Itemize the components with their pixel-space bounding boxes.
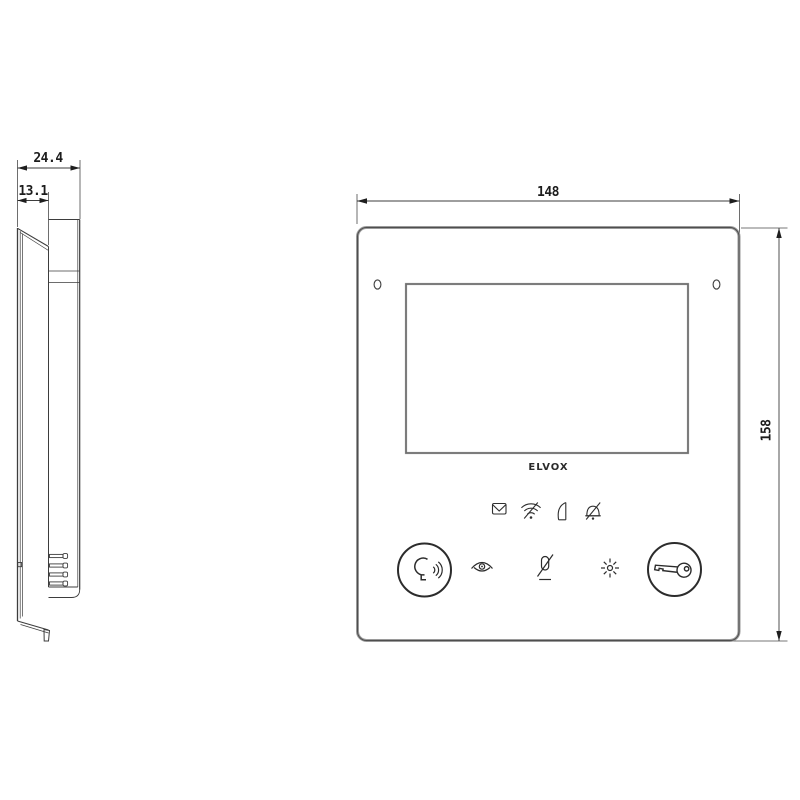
camera-eye-icon bbox=[472, 563, 493, 572]
dim-label-total-depth: 24.4 bbox=[24, 151, 72, 166]
side-front-panel bbox=[18, 228, 50, 641]
mic-muted-icon bbox=[538, 555, 554, 580]
terminal-pins bbox=[50, 554, 68, 586]
terminal-pin bbox=[50, 581, 68, 586]
monitor-outline bbox=[358, 228, 740, 641]
message-icon bbox=[493, 504, 507, 515]
status-icon-row bbox=[493, 503, 601, 520]
stair-light-icon bbox=[601, 559, 619, 578]
dim-label-height: 158 bbox=[760, 407, 775, 455]
side-extension-lines bbox=[18, 160, 81, 245]
wifi-icon bbox=[521, 503, 540, 519]
touch-control-row bbox=[398, 543, 701, 597]
terminal-pin bbox=[50, 572, 68, 577]
side-view bbox=[18, 160, 81, 641]
open-door-icon bbox=[558, 503, 566, 520]
slot-left bbox=[374, 280, 381, 289]
screen bbox=[406, 284, 688, 453]
dimension-total-depth bbox=[18, 165, 81, 170]
terminal-pin bbox=[50, 554, 68, 559]
slot-right bbox=[713, 280, 720, 289]
dim-label-width: 148 bbox=[524, 185, 572, 200]
front-extension-lines bbox=[357, 194, 788, 641]
terminal-pin bbox=[50, 563, 68, 568]
key-icon bbox=[654, 558, 692, 578]
side-rear-box bbox=[49, 220, 80, 598]
talk-answer-button bbox=[398, 544, 451, 597]
dim-label-front-depth: 13.1 bbox=[9, 184, 57, 199]
talk-icon bbox=[415, 558, 442, 580]
door-lock-key-button bbox=[648, 543, 701, 596]
bell-muted-icon bbox=[585, 503, 601, 520]
dimension-height bbox=[776, 228, 781, 641]
brand-logo: ELVOX bbox=[522, 462, 575, 473]
technical-drawing-page: 24.4 13.1 148 158 ELVOX bbox=[0, 0, 800, 800]
front-view bbox=[357, 194, 788, 641]
drawing-linework bbox=[0, 0, 800, 800]
